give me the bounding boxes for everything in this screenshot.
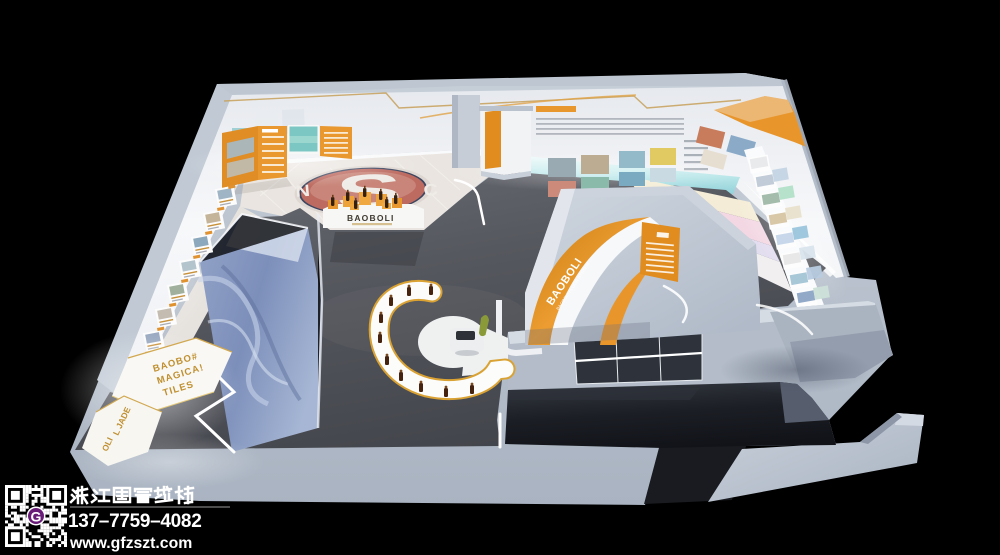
svg-text:G: G — [31, 509, 42, 525]
svg-text:C: C — [423, 180, 439, 200]
svg-text:137–7759–4082: 137–7759–4082 — [68, 511, 201, 532]
svg-text:BAOBOLI: BAOBOLI — [347, 213, 395, 223]
svg-text:www.gfzszt.com: www.gfzszt.com — [69, 535, 192, 552]
